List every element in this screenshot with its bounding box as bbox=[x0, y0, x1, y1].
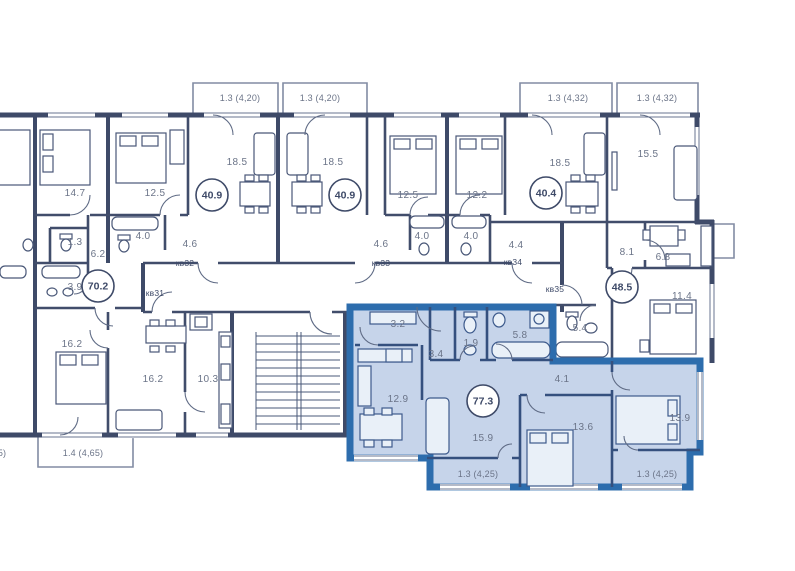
total-area-badge-77.3[interactable]: 77.3 bbox=[467, 385, 499, 417]
room-area-label: 5.8 bbox=[513, 330, 528, 341]
balcony-area-label: 1.3 (4,20) bbox=[300, 93, 341, 103]
room-area-label: 4.0 bbox=[136, 231, 151, 242]
room-area-label: 3.9 bbox=[0, 282, 1, 293]
room-area-label: 6.8 bbox=[656, 252, 671, 263]
total-area-badge-40.9[interactable]: 40.9 bbox=[329, 179, 361, 211]
apartment-number-label: кв33 bbox=[372, 258, 391, 268]
apartment-number-label: кв34 bbox=[504, 257, 523, 267]
balcony-area-label: 1.3 (4,25) bbox=[637, 469, 678, 479]
room-area-label: 4.0 bbox=[415, 231, 430, 242]
total-area-value: 40.9 bbox=[202, 190, 223, 202]
room-area-label: 15.9 bbox=[473, 433, 494, 444]
room-area-label: 8.1 bbox=[620, 247, 635, 258]
room-area-label: 12.5 bbox=[145, 188, 166, 199]
room-area-label: 16.2 bbox=[143, 374, 164, 385]
room-area-label: 4.6 bbox=[374, 239, 389, 250]
floor-plan: 14.712.518.518.512.512.218.515.51.36.23.… bbox=[0, 0, 795, 571]
balcony-area-label: 1.3 (4,20) bbox=[220, 93, 261, 103]
stairs bbox=[256, 332, 340, 430]
room-area-label: 12.9 bbox=[388, 394, 409, 405]
total-area-badge-48.5[interactable]: 48.5 bbox=[606, 271, 638, 303]
room-area-label: 5.4 bbox=[573, 323, 588, 334]
room-area-label: 4.6 bbox=[183, 239, 198, 250]
room-area-label: 13.9 bbox=[670, 413, 691, 424]
total-area-badge-40.9[interactable]: 40.9 bbox=[196, 179, 228, 211]
total-area-badge-40.4[interactable]: 40.4 bbox=[530, 177, 562, 209]
floor-plan-svg: 14.712.518.518.512.512.218.515.51.36.23.… bbox=[0, 0, 795, 571]
total-area-value: 48.5 bbox=[612, 282, 633, 294]
room-area-label: 12.5 bbox=[398, 190, 419, 201]
room-area-label: 1.3 bbox=[68, 237, 83, 248]
room-area-label: 12.2 bbox=[467, 190, 488, 201]
balcony-area-label: 1.3 (4,32) bbox=[548, 93, 589, 103]
room-area-label: 3.9 bbox=[68, 282, 83, 293]
total-area-badge-70.2[interactable]: 70.2 bbox=[82, 270, 114, 302]
room-area-label: 3.4 bbox=[429, 349, 444, 360]
balcony-area-label: 1.4 (4,65) bbox=[0, 448, 6, 458]
room-area-label: 4.0 bbox=[464, 231, 479, 242]
apartment-number-label: кв32 bbox=[176, 258, 195, 268]
room-area-label: 6.2 bbox=[91, 249, 106, 260]
room-area-label: 11.4 bbox=[672, 291, 692, 302]
room-area-label: 1.9 bbox=[464, 338, 479, 349]
room-area-label: 1.3 bbox=[0, 237, 1, 248]
room-area-label: 3.2 bbox=[391, 319, 406, 330]
room-area-label: 18.5 bbox=[323, 157, 344, 168]
room-area-label: 15.5 bbox=[638, 149, 659, 160]
total-area-value: 40.9 bbox=[335, 190, 356, 202]
room-area-label: 16.2 bbox=[62, 339, 83, 350]
room-area-label: 4.1 bbox=[555, 374, 570, 385]
room-area-label: 18.5 bbox=[227, 157, 248, 168]
apartment-number-label: кв35 bbox=[546, 284, 565, 294]
room-area-label: 13.6 bbox=[573, 422, 594, 433]
room-area-label: 18.5 bbox=[550, 158, 571, 169]
total-area-value: 77.3 bbox=[473, 396, 494, 408]
balcony-area-label: 1.3 (4,25) bbox=[458, 469, 499, 479]
total-area-value: 40.4 bbox=[536, 188, 557, 200]
room-area-label: 10.3 bbox=[198, 374, 219, 385]
balcony-area-label: 1.3 (4,32) bbox=[637, 93, 678, 103]
room-area-label: 4.4 bbox=[509, 240, 524, 251]
total-area-value: 70.2 bbox=[88, 281, 109, 293]
apartment-number-label: кв31 bbox=[146, 288, 165, 298]
room-area-label: 14.7 bbox=[65, 188, 86, 199]
balcony-area-label: 1.4 (4,65) bbox=[63, 448, 104, 458]
